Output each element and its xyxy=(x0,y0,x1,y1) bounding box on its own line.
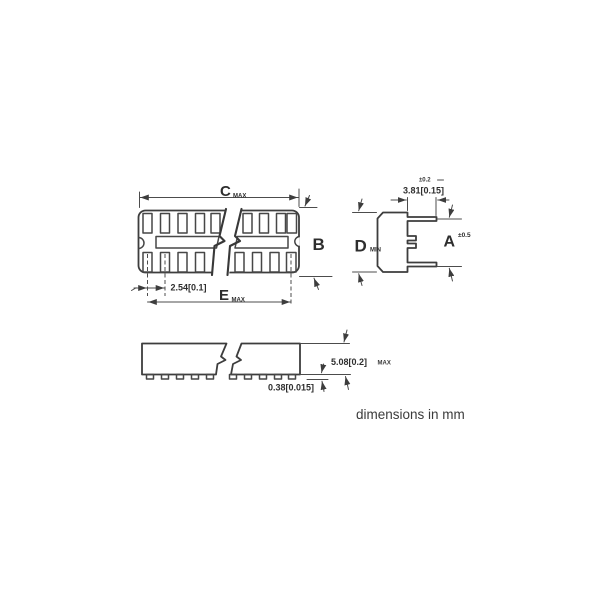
dim-b-letter: B xyxy=(313,235,325,254)
dimension-body-height: 5.08[0.2] MAX xyxy=(300,330,391,390)
pitch-dimension-text: 2.54[0.1] xyxy=(171,283,207,293)
end-view: D MIN A ±0.5 3.81[0.15] ±0.2 xyxy=(353,178,471,286)
dim-c-qualifier: MAX xyxy=(233,194,246,200)
ic-socket-dimension-drawing: C MAX B 2.54[0.1] E MAX xyxy=(0,0,605,605)
dim-d-letter: D xyxy=(355,237,367,256)
dim-c-letter: C xyxy=(220,183,231,200)
dimension-b: B xyxy=(300,196,333,290)
scanned-datasheet-page: C MAX B 2.54[0.1] E MAX xyxy=(0,0,605,605)
side-view-body-right xyxy=(231,344,300,375)
body-height-qualifier: MAX xyxy=(378,361,391,367)
dim-a-letter: A xyxy=(444,234,456,251)
dim-e-letter: E xyxy=(219,287,229,304)
dimension-c: C MAX xyxy=(140,183,300,208)
pin-slots-top-row xyxy=(143,214,297,234)
dimension-pitch: 2.54[0.1] xyxy=(132,283,207,293)
end-view-outline xyxy=(378,213,437,273)
dim-e-qualifier: MAX xyxy=(232,298,245,304)
right-edge-notch xyxy=(295,237,300,247)
center-slot-right xyxy=(235,237,288,249)
units-note: dimensions in mm xyxy=(356,407,465,422)
side-view-body-left xyxy=(142,344,227,375)
dim-a-tolerance: ±0.5 xyxy=(458,232,471,239)
dimension-contact-offset: 3.81[0.15] ±0.2 xyxy=(391,178,449,216)
dim-d-qualifier: MIN xyxy=(370,248,381,254)
dimension-a: A ±0.5 xyxy=(437,205,471,281)
side-view: 5.08[0.2] MAX 0.38[0.015] xyxy=(142,330,391,393)
standoff-text: 0.38[0.015] xyxy=(268,383,314,393)
dimension-e: E MAX xyxy=(148,287,292,304)
contact-offset-tolerance-text: ±0.2 xyxy=(419,178,431,184)
top-view: C MAX B 2.54[0.1] E MAX xyxy=(132,183,333,304)
center-slot-left xyxy=(156,237,219,249)
contact-offset-text: 3.81[0.15] xyxy=(403,186,444,196)
body-height-text: 5.08[0.2] xyxy=(331,357,367,367)
